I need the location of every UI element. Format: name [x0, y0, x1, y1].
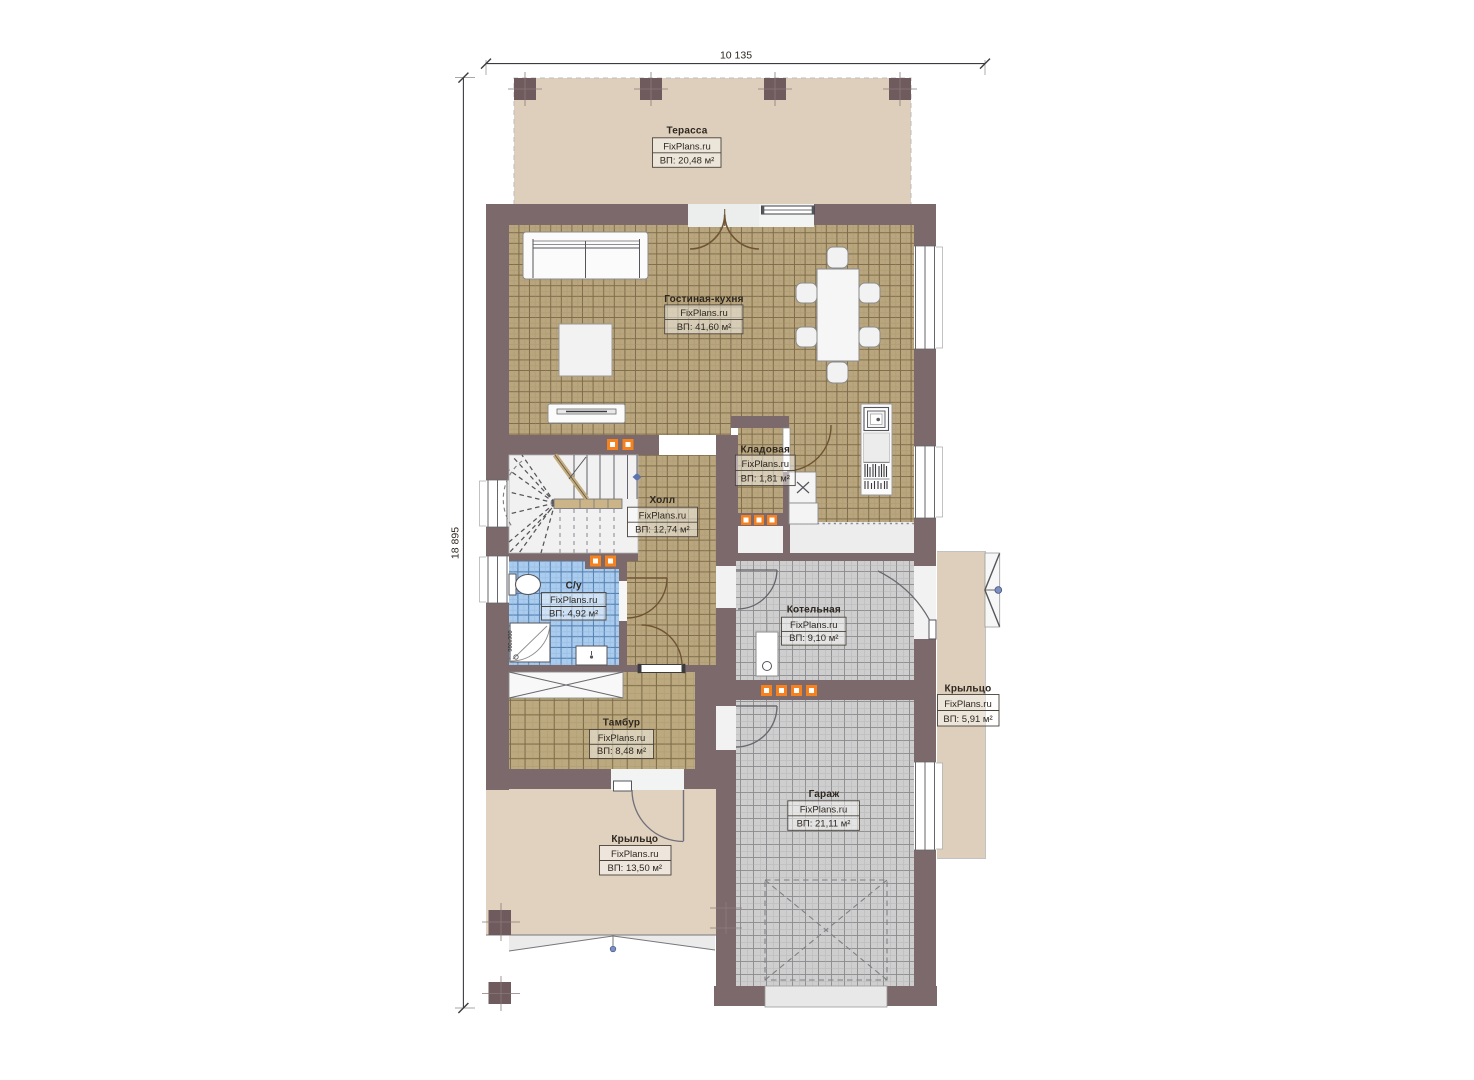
svg-text:ВП: 4,92 м²: ВП: 4,92 м²: [549, 609, 598, 620]
svg-text:Терасса: Терасса: [666, 126, 707, 137]
svg-text:ВП: 41,60 м²: ВП: 41,60 м²: [677, 322, 732, 333]
svg-text:FixPlans.ru: FixPlans.ru: [550, 595, 598, 606]
svg-text:ВП: 21,11 м²: ВП: 21,11 м²: [797, 818, 851, 829]
svg-text:Крыльцо: Крыльцо: [945, 684, 992, 695]
svg-text:Кладовая: Кладовая: [741, 445, 791, 456]
svg-text:Холл: Холл: [649, 495, 675, 506]
svg-text:FixPlans.ru: FixPlans.ru: [598, 733, 646, 744]
svg-text:10 135: 10 135: [720, 50, 752, 62]
svg-text:ВП: 8,48 м²: ВП: 8,48 м²: [597, 746, 646, 757]
svg-text:Тамбур: Тамбур: [603, 717, 640, 729]
svg-text:ВП: 13,50 м²: ВП: 13,50 м²: [608, 863, 663, 874]
svg-text:FixPlans.ru: FixPlans.ru: [680, 308, 728, 319]
svg-text:FixPlans.ru: FixPlans.ru: [742, 459, 790, 470]
svg-text:ВП: 12,74 м²: ВП: 12,74 м²: [635, 525, 690, 536]
svg-text:Гостиная-кухня: Гостиная-кухня: [664, 294, 743, 305]
svg-text:С/у: С/у: [566, 581, 582, 592]
svg-text:900х900: 900х900: [508, 630, 514, 651]
svg-text:Котельная: Котельная: [787, 605, 841, 616]
svg-text:Гараж: Гараж: [809, 789, 841, 800]
svg-text:FixPlans.ru: FixPlans.ru: [663, 141, 711, 152]
svg-text:FixPlans.ru: FixPlans.ru: [800, 804, 848, 815]
svg-text:FixPlans.ru: FixPlans.ru: [790, 620, 838, 631]
svg-text:ВП: 1,81 м²: ВП: 1,81 м²: [741, 474, 790, 485]
svg-text:FixPlans.ru: FixPlans.ru: [944, 699, 992, 710]
svg-text:FixPlans.ru: FixPlans.ru: [639, 511, 687, 522]
svg-text:ВП: 9,10 м²: ВП: 9,10 м²: [789, 633, 838, 644]
svg-text:ВП: 5,91 м²: ВП: 5,91 м²: [943, 714, 992, 725]
svg-text:18 895: 18 895: [450, 527, 462, 559]
svg-text:Крыльцо: Крыльцо: [611, 834, 658, 845]
svg-text:FixPlans.ru: FixPlans.ru: [611, 849, 659, 860]
svg-text:ВП: 20,48 м²: ВП: 20,48 м²: [660, 155, 715, 166]
